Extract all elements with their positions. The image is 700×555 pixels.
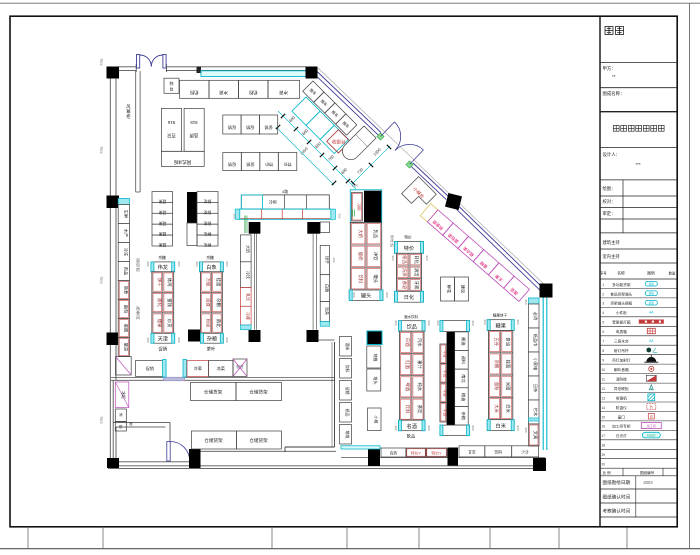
svg-text:汽水: 汽水	[417, 338, 423, 347]
svg-text:糖果: 糖果	[156, 319, 163, 328]
svg-text:白米: 白米	[505, 404, 512, 413]
svg-text:AA: AA	[649, 339, 654, 343]
svg-text:915: 915	[190, 120, 198, 125]
svg-text:食品货架端头: 食品货架端头	[610, 291, 632, 296]
svg-text:900: 900	[225, 261, 229, 266]
svg-text:百货: 百货	[167, 132, 176, 139]
svg-text:乳饮: 乳饮	[245, 293, 250, 301]
svg-text:小堆: 小堆	[374, 416, 380, 424]
svg-text:牙膏: 牙膏	[413, 281, 420, 290]
svg-text:飲品: 飲品	[407, 433, 415, 440]
svg-text:9: 9	[602, 359, 604, 363]
svg-text:11: 11	[602, 377, 606, 381]
svg-text:窗: 窗	[650, 415, 653, 419]
svg-text:蜜饯: 蜜饯	[166, 298, 173, 307]
svg-text:900: 900	[225, 337, 229, 342]
svg-text:16: 16	[602, 425, 606, 429]
svg-text:650: 650	[314, 140, 323, 149]
svg-text:推车: 推车	[331, 109, 340, 118]
svg-text:酸奶: 酸奶	[357, 252, 364, 261]
svg-text:306: 306	[233, 213, 237, 218]
svg-text:品牌: 品牌	[189, 132, 198, 139]
svg-text:干货: 干货	[443, 370, 448, 378]
svg-text:900: 900	[394, 425, 398, 430]
svg-text:纸品: 纸品	[345, 409, 350, 417]
svg-text:760: 760	[327, 153, 336, 162]
svg-text:饮品: 饮品	[407, 322, 417, 330]
svg-text:糖果饼干: 糖果饼干	[493, 313, 508, 318]
svg-text:900: 900	[385, 292, 389, 297]
svg-text:面粉: 面粉	[493, 382, 500, 391]
svg-text:促销: 促销	[246, 125, 254, 131]
svg-text:900: 900	[177, 337, 181, 342]
svg-text:纸品: 纸品	[401, 255, 408, 264]
svg-text:仓储货架: 仓储货架	[249, 389, 268, 396]
svg-text:货架: 货架	[648, 301, 654, 305]
svg-text:比 例: 比 例	[603, 470, 612, 475]
svg-text:冲调: 冲调	[220, 89, 229, 96]
svg-text:7500: 7500	[99, 146, 103, 154]
svg-text:**: **	[612, 74, 616, 79]
svg-text:17: 17	[602, 434, 606, 438]
svg-text:吊灯加射灯: 吊灯加射灯	[612, 358, 631, 363]
svg-text:660: 660	[301, 127, 310, 136]
svg-text:散货: 散货	[122, 343, 129, 351]
svg-text:啤酒: 啤酒	[404, 383, 411, 392]
svg-text:蔬菜: 蔬菜	[508, 285, 520, 296]
svg-text:茶饮: 茶饮	[416, 405, 423, 414]
svg-text:甘苦: 甘苦	[468, 449, 476, 454]
svg-text:喇叭音箱: 喇叭音箱	[614, 367, 629, 372]
svg-text:916: 916	[167, 120, 175, 125]
svg-text:纸品巾: 纸品巾	[532, 334, 539, 347]
svg-text:白酒: 白酒	[404, 338, 411, 347]
svg-text:图成名称：: 图成名称：	[603, 90, 625, 97]
svg-text:特价Y: 特价Y	[431, 450, 442, 455]
svg-text:熟食类: 熟食类	[430, 218, 445, 232]
svg-text:必消: 必消	[532, 312, 539, 320]
svg-text:糖果: 糖果	[496, 322, 506, 330]
svg-text:900: 900	[391, 255, 395, 260]
svg-text:水果: 水果	[493, 272, 505, 283]
svg-text:2100: 2100	[352, 184, 359, 188]
svg-text:奶: 奶	[390, 242, 394, 247]
svg-text:面包: 面包	[122, 305, 129, 314]
svg-text:900: 900	[177, 261, 181, 266]
svg-text:名酒: 名酒	[407, 422, 417, 430]
svg-text:乳品: 乳品	[372, 230, 379, 239]
svg-text:蔬果: 蔬果	[159, 210, 167, 215]
svg-text:仓储货架: 仓储货架	[204, 389, 223, 396]
svg-text:少计: 少计	[521, 449, 529, 454]
svg-text:加工间专柜: 加工间专柜	[612, 424, 631, 429]
svg-text:900: 900	[483, 319, 487, 324]
svg-text:京糖: 京糖	[206, 255, 214, 260]
svg-text:900: 900	[516, 319, 520, 324]
svg-text:冰柜: 冰柜	[121, 391, 126, 399]
svg-text:306: 306	[338, 213, 342, 218]
svg-text:建筑主持: 建筑主持	[603, 239, 621, 246]
svg-text:奶粉: 奶粉	[189, 89, 198, 96]
svg-text:台: 台	[169, 86, 173, 93]
svg-text:五谷: 五谷	[493, 337, 500, 346]
svg-text:建议: 建议	[460, 285, 467, 294]
svg-text:杂粮: 杂粮	[207, 334, 217, 342]
svg-text:食油: 食油	[505, 337, 512, 346]
svg-text:加工间: 加工间	[647, 423, 656, 428]
svg-text:米面: 米面	[505, 382, 512, 391]
svg-text:宝丽板灯箱: 宝丽板灯箱	[612, 320, 631, 325]
svg-text:甲方：: 甲方：	[603, 65, 616, 72]
svg-text:900: 900	[436, 320, 440, 325]
svg-text:推车: 推车	[342, 120, 351, 129]
svg-text:鲜花: 鲜花	[204, 232, 212, 237]
svg-text:7500: 7500	[99, 58, 103, 66]
svg-text:13: 13	[602, 396, 606, 400]
svg-text:306: 306	[332, 257, 336, 262]
svg-text:名称: 名称	[617, 271, 625, 276]
svg-text:间: 间	[136, 314, 140, 320]
svg-text:饮料: 饮料	[357, 275, 364, 284]
svg-text:推车: 推车	[309, 87, 318, 96]
svg-text:900: 900	[471, 425, 475, 430]
svg-text:收銀台: 收銀台	[332, 139, 346, 146]
svg-text:干货: 干货	[443, 409, 448, 417]
svg-text:大奶: 大奶	[357, 230, 364, 239]
svg-text:15: 15	[602, 415, 606, 419]
svg-text:伟龙: 伟龙	[158, 263, 168, 271]
svg-text:促销: 促销	[146, 365, 154, 372]
svg-text:AA: AA	[649, 311, 654, 315]
svg-text:序号: 序号	[600, 271, 607, 276]
svg-text:房: 房	[136, 266, 140, 272]
svg-text:特价: 特价	[404, 244, 415, 252]
svg-text:白米: 白米	[496, 422, 507, 430]
svg-text:仓储货架: 仓储货架	[204, 437, 223, 444]
svg-text:审定：: 审定：	[603, 210, 616, 217]
svg-text:特价: 特价	[404, 235, 412, 240]
svg-text:900: 900	[516, 425, 520, 430]
svg-text:室内主持: 室内主持	[603, 253, 621, 260]
svg-text:杂粮: 杂粮	[493, 360, 500, 369]
svg-text:收银机: 收银机	[616, 395, 627, 400]
svg-text:14: 14	[602, 406, 606, 410]
svg-text:饮料: 饮料	[345, 365, 350, 373]
svg-text:绘图：: 绘图：	[603, 185, 616, 192]
svg-text:奶粉: 奶粉	[248, 89, 257, 96]
svg-text:鲜花: 鲜花	[204, 210, 212, 215]
svg-text:校对：: 校对：	[603, 198, 616, 205]
svg-text:冲饮: 冲饮	[372, 252, 379, 261]
svg-text:南北: 南北	[215, 319, 222, 328]
svg-text:900: 900	[146, 337, 150, 342]
svg-text:设计人：: 设计人：	[603, 151, 621, 158]
svg-text:竹木: 竹木	[532, 408, 539, 417]
svg-text:冷荤: 冷荤	[194, 365, 202, 372]
svg-text:饼干: 饼干	[156, 278, 163, 287]
svg-text:地推: 地推	[373, 354, 379, 362]
svg-text:果汁: 果汁	[416, 360, 423, 369]
svg-text:罐头: 罐头	[361, 292, 371, 300]
svg-text:数量: 数量	[669, 271, 676, 276]
svg-text:红酒: 红酒	[404, 360, 411, 369]
svg-text:促销: 促销	[228, 125, 236, 131]
svg-text:饼干: 饼干	[324, 256, 329, 264]
svg-text:冷柜: 冷柜	[269, 199, 277, 205]
svg-text:多功能货架: 多功能货架	[612, 282, 631, 287]
svg-text:挂面: 挂面	[215, 278, 222, 287]
svg-text:8: 8	[602, 349, 604, 353]
svg-text:鲜花: 鲜花	[204, 199, 212, 204]
svg-text:粮油: 粮油	[460, 393, 467, 401]
svg-text:图纸勘绘日期: 图纸勘绘日期	[603, 479, 631, 486]
svg-text:小家电: 小家电	[532, 358, 539, 371]
svg-text:2: 2	[602, 292, 604, 296]
svg-text:饮料: 饮料	[404, 405, 411, 414]
svg-text:纯水: 纯水	[417, 383, 423, 392]
svg-text:18: 18	[602, 444, 606, 448]
svg-text:面食: 面食	[204, 298, 211, 307]
svg-text:图纸编号: 图纸编号	[640, 470, 655, 475]
svg-text:7500: 7500	[99, 276, 103, 284]
svg-text:6: 6	[602, 330, 604, 334]
svg-text:冷冻: 冷冻	[122, 248, 129, 256]
svg-text:天津: 天津	[158, 335, 168, 342]
svg-text:900: 900	[524, 299, 528, 304]
svg-text:大米: 大米	[493, 404, 500, 413]
svg-text:1: 1	[602, 283, 604, 287]
svg-text:糕点类: 糕点类	[461, 244, 476, 258]
svg-text:生鲜: 生鲜	[122, 210, 129, 219]
svg-text:南北: 南北	[460, 374, 467, 383]
svg-text:4路: 4路	[282, 188, 288, 194]
svg-text:三层木台: 三层木台	[614, 339, 629, 344]
svg-text:特价Y: 特价Y	[411, 450, 422, 455]
svg-text:日光灯: 日光灯	[616, 433, 627, 438]
svg-text:洗涤: 洗涤	[401, 268, 408, 277]
svg-text:促销: 促销	[247, 162, 255, 168]
svg-text:有砖: 有砖	[390, 450, 398, 455]
svg-text:2004: 2004	[643, 480, 653, 485]
svg-text:900: 900	[427, 320, 431, 325]
svg-text:粉丝: 粉丝	[204, 319, 211, 328]
svg-text:防: 防	[119, 424, 123, 429]
svg-text:推车: 推车	[320, 98, 329, 107]
svg-text:清洁: 清洁	[413, 268, 420, 277]
svg-text:冷柜: 冷柜	[357, 203, 362, 211]
svg-text:7: 7	[602, 340, 604, 344]
svg-text:白象: 白象	[206, 263, 216, 271]
svg-text:电表箱: 电表箱	[616, 329, 627, 334]
svg-text:特价: 特价	[284, 162, 292, 168]
svg-text:挂面: 挂面	[505, 360, 512, 369]
svg-text:3: 3	[602, 302, 604, 306]
svg-text:货架: 货架	[648, 292, 654, 296]
svg-text:900: 900	[146, 261, 150, 266]
svg-text:文具: 文具	[532, 431, 539, 440]
svg-text:面包类: 面包类	[446, 231, 461, 245]
svg-text:休闲: 休闲	[166, 278, 173, 287]
svg-text:方便: 方便	[204, 278, 211, 287]
svg-text:酒水: 酒水	[345, 343, 350, 351]
svg-text:19: 19	[602, 453, 606, 457]
svg-text:玩具: 玩具	[324, 307, 329, 315]
svg-text:饮料: 饮料	[494, 449, 502, 454]
svg-text:防盗仪: 防盗仪	[616, 405, 627, 410]
svg-text:酒水饮料: 酒水饮料	[404, 314, 419, 319]
svg-text:12: 12	[602, 387, 606, 391]
svg-text:图纸确认时间: 图纸确认时间	[603, 494, 631, 501]
svg-text:促销: 促销	[345, 387, 350, 395]
svg-text:900: 900	[427, 425, 431, 430]
svg-text:干货: 干货	[443, 350, 448, 358]
svg-text:地堆: 地堆	[345, 431, 350, 439]
svg-text:日化: 日化	[413, 255, 420, 264]
svg-text:肉品: 肉品	[122, 267, 129, 275]
svg-text:仓储货架: 仓储货架	[249, 437, 268, 444]
svg-text:小件柜: 小件柜	[616, 310, 627, 315]
svg-text:杂粮: 杂粮	[460, 412, 467, 421]
svg-text:5: 5	[602, 321, 604, 325]
svg-text:7500: 7500	[99, 416, 103, 424]
svg-text:货架: 货架	[648, 282, 654, 286]
svg-text:冷饮: 冷饮	[245, 271, 250, 279]
svg-text:防: 防	[650, 405, 653, 409]
svg-text:3450: 3450	[299, 145, 309, 155]
svg-text:堆头: 堆头	[373, 377, 379, 385]
svg-text:蔬果: 蔬果	[159, 243, 167, 248]
svg-text:大奶: 大奶	[245, 245, 250, 253]
svg-text:10: 10	[602, 368, 606, 372]
svg-text:促销: 促销	[158, 346, 167, 353]
svg-text:罐头: 罐头	[372, 275, 379, 284]
svg-text:轻货: 轻货	[236, 364, 244, 369]
svg-text:熟食: 熟食	[122, 286, 129, 295]
svg-text:酱油: 酱油	[460, 337, 467, 345]
svg-text:4: 4	[602, 311, 604, 315]
svg-text:900: 900	[524, 427, 528, 432]
svg-text:900: 900	[471, 320, 475, 325]
svg-text:白酒: 白酒	[324, 284, 329, 292]
svg-text:考察确认时间: 考察确认时间	[603, 508, 631, 515]
svg-text:促销: 促销	[265, 125, 273, 131]
svg-text:促销: 促销	[228, 162, 236, 168]
svg-text:柜: 柜	[126, 113, 131, 120]
svg-text:杂粮: 杂粮	[215, 298, 222, 307]
svg-text:900: 900	[425, 255, 429, 260]
svg-text:货架端头搁板: 货架端头搁板	[610, 301, 632, 306]
svg-text:冷藏: 冷藏	[245, 312, 250, 320]
svg-text:20: 20	[602, 463, 606, 467]
svg-text:图例: 图例	[647, 271, 655, 276]
svg-text:900: 900	[352, 292, 356, 297]
svg-text:膨化: 膨化	[156, 298, 163, 307]
svg-text:900: 900	[195, 261, 199, 266]
svg-text:特价: 特价	[265, 162, 273, 168]
svg-text:日光灯: 日光灯	[647, 432, 656, 437]
svg-text:***: ***	[635, 162, 641, 167]
svg-text:900: 900	[394, 320, 398, 325]
svg-text:调料: 调料	[460, 356, 467, 365]
svg-text:射灯吊杆: 射灯吊杆	[614, 348, 629, 353]
svg-text:京糖: 京糖	[158, 255, 166, 260]
svg-text:干货: 干货	[443, 389, 448, 397]
svg-text:蛋糕: 蛋糕	[122, 324, 129, 333]
svg-text:冲调: 冲调	[280, 89, 289, 96]
svg-text:蔬果: 蔬果	[159, 199, 167, 204]
svg-text:水产: 水产	[122, 229, 129, 237]
svg-text:栓: 栓	[129, 421, 133, 426]
svg-text:消: 消	[119, 412, 123, 417]
svg-text:鲜花: 鲜花	[446, 285, 453, 293]
svg-text:香皂: 香皂	[401, 281, 408, 290]
svg-text:消防栓: 消防栓	[616, 376, 627, 381]
svg-text:日化: 日化	[404, 293, 414, 301]
svg-text:凉菜: 凉菜	[217, 365, 226, 372]
svg-text:鲜花: 鲜花	[204, 221, 212, 226]
svg-text:690: 690	[340, 166, 349, 175]
svg-text:蔬果: 蔬果	[159, 221, 167, 226]
svg-text:730: 730	[356, 166, 365, 175]
svg-text:蔬果: 蔬果	[159, 232, 167, 237]
svg-text:茶叶: 茶叶	[207, 346, 216, 353]
svg-text:690: 690	[288, 114, 297, 123]
svg-text:窗口: 窗口	[618, 414, 626, 419]
svg-text:炒货: 炒货	[166, 319, 173, 328]
svg-text:异形联柜: 异形联柜	[614, 386, 629, 391]
svg-text:网式冰柜: 网式冰柜	[173, 159, 191, 166]
svg-text:鲜花: 鲜花	[204, 243, 212, 248]
svg-text:蛋糕: 蛋糕	[478, 259, 490, 270]
